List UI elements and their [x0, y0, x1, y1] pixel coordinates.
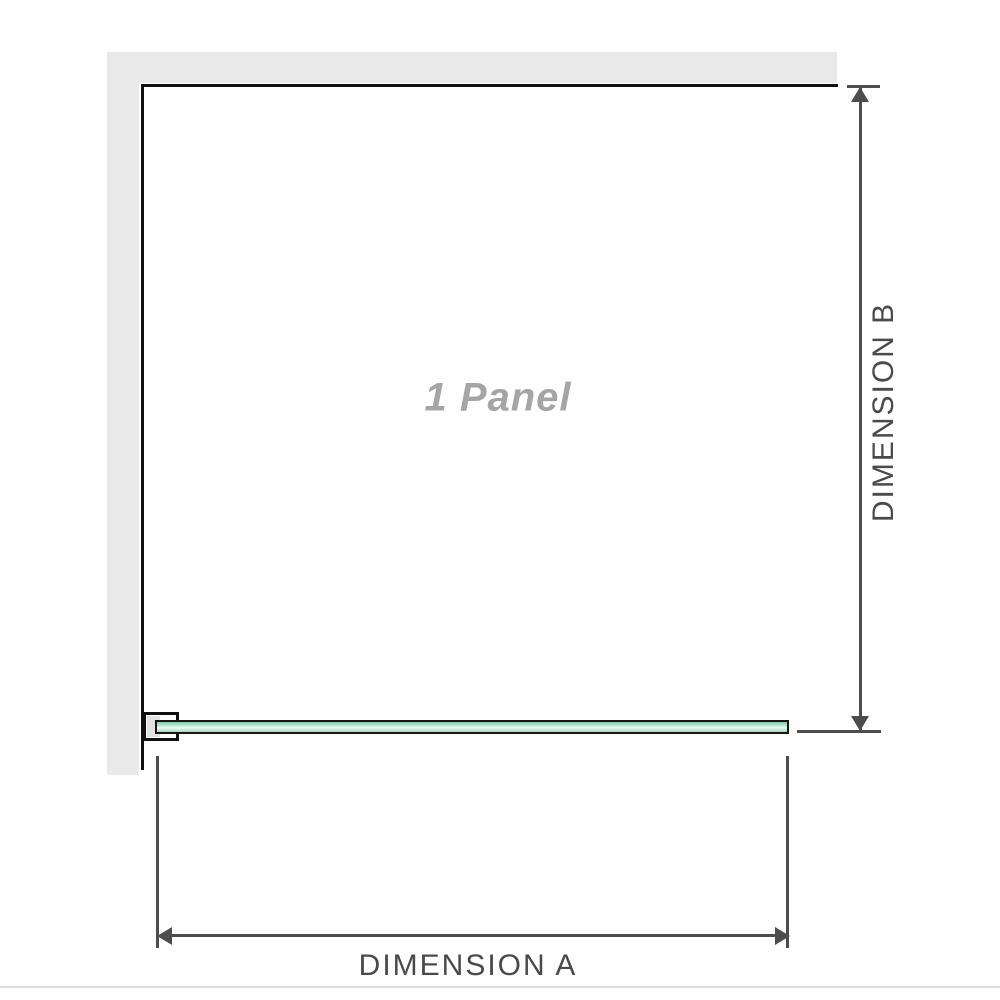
dimension-a-extension-left: [156, 756, 159, 948]
wall-top: [107, 52, 837, 83]
wall-left: [107, 52, 139, 775]
panel-outline-top: [141, 84, 838, 87]
dimension-a-line: [160, 934, 787, 937]
dimension-b-label: DIMENSION B: [867, 302, 901, 522]
panel-outline-left: [141, 84, 144, 770]
glass-panel: [155, 720, 789, 734]
arrowhead-up-icon: [851, 87, 869, 102]
dimension-a-label: DIMENSION A: [359, 949, 578, 983]
image-edge-divider: [0, 986, 1000, 988]
arrowhead-left-icon: [157, 927, 172, 945]
arrowhead-right-icon: [775, 927, 790, 945]
panel-count-label: 1 Panel: [424, 376, 571, 421]
arrowhead-down-icon: [851, 716, 869, 731]
dimension-b-line: [859, 88, 862, 731]
dimension-a-extension-right: [786, 756, 789, 948]
